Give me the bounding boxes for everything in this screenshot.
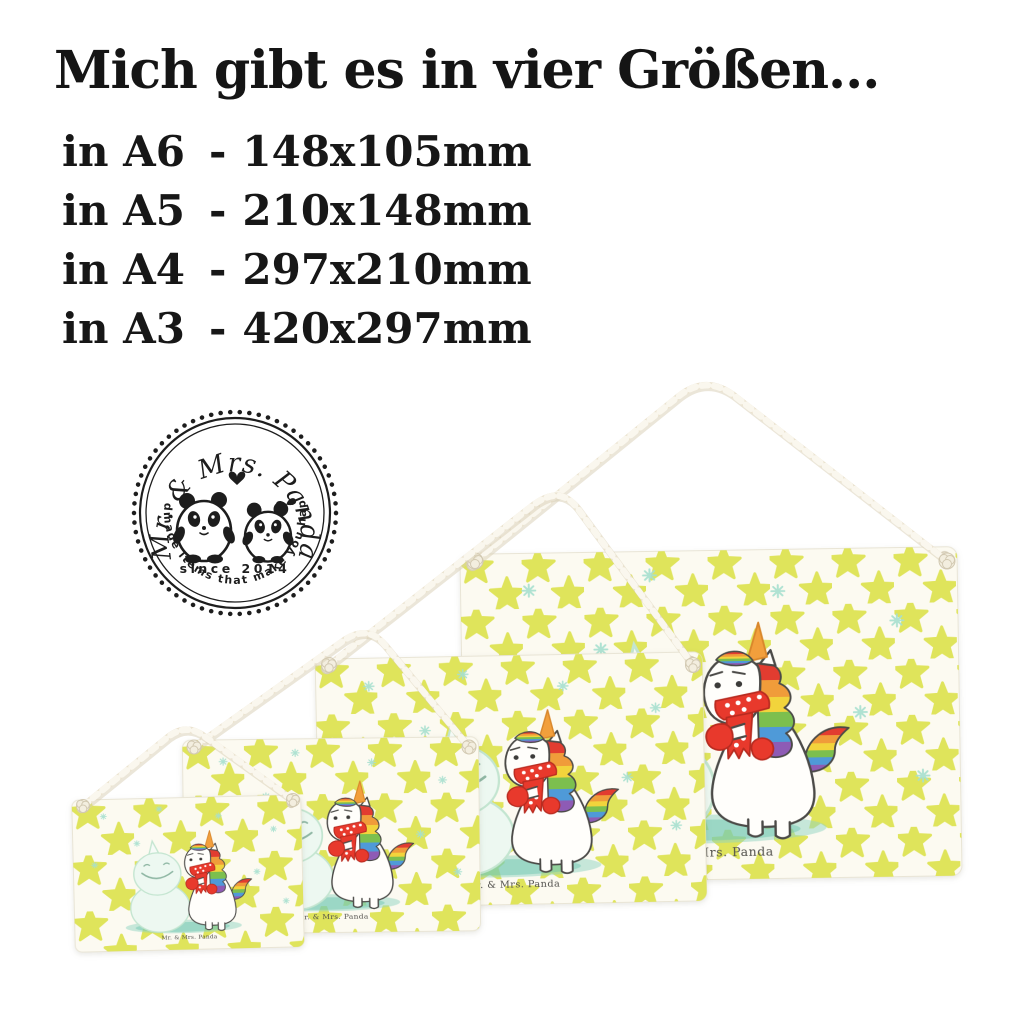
sign-a6: Mr. & Mrs. Panda [71, 794, 305, 953]
cord-hole-icon [77, 804, 85, 812]
size-item-a3: in A3 - 420x297mm [62, 299, 532, 358]
size-dimensions: 297x210mm [242, 245, 531, 294]
cord-hole-icon [322, 663, 332, 673]
size-label: in A4 [62, 245, 185, 294]
size-label: in A6 [62, 127, 185, 176]
cord-hole-icon [287, 799, 295, 807]
cord-hole-icon [188, 744, 197, 753]
cord-hole-icon [467, 559, 478, 570]
cord-hole-icon [463, 741, 472, 750]
size-separator: - [209, 127, 226, 176]
cord-hole-icon [939, 552, 950, 563]
size-item-a4: in A4 - 297x210mm [62, 240, 532, 299]
headline: Mich gibt es in vier Größen... [54, 40, 879, 101]
size-separator: - [209, 245, 226, 294]
size-label: in A5 [62, 186, 185, 235]
size-list: in A6 - 148x105mm in A5 - 210x148mm in A… [62, 122, 532, 358]
size-label: in A3 [62, 304, 185, 353]
size-dimensions: 210x148mm [242, 186, 531, 235]
brand-badge: Mr. & Mrs. Panda [126, 404, 344, 622]
size-item-a5: in A5 - 210x148mm [62, 181, 532, 240]
product-showcase: Mich gibt es in vier Größen... in A6 - 1… [0, 0, 1024, 1024]
size-dimensions: 148x105mm [242, 127, 531, 176]
size-separator: - [209, 304, 226, 353]
size-separator: - [209, 186, 226, 235]
cord-hole-icon [686, 656, 696, 666]
brand-watermark: Mr. & Mrs. Panda [296, 912, 369, 922]
size-item-a6: in A6 - 148x105mm [62, 122, 532, 181]
size-dimensions: 420x297mm [242, 304, 531, 353]
